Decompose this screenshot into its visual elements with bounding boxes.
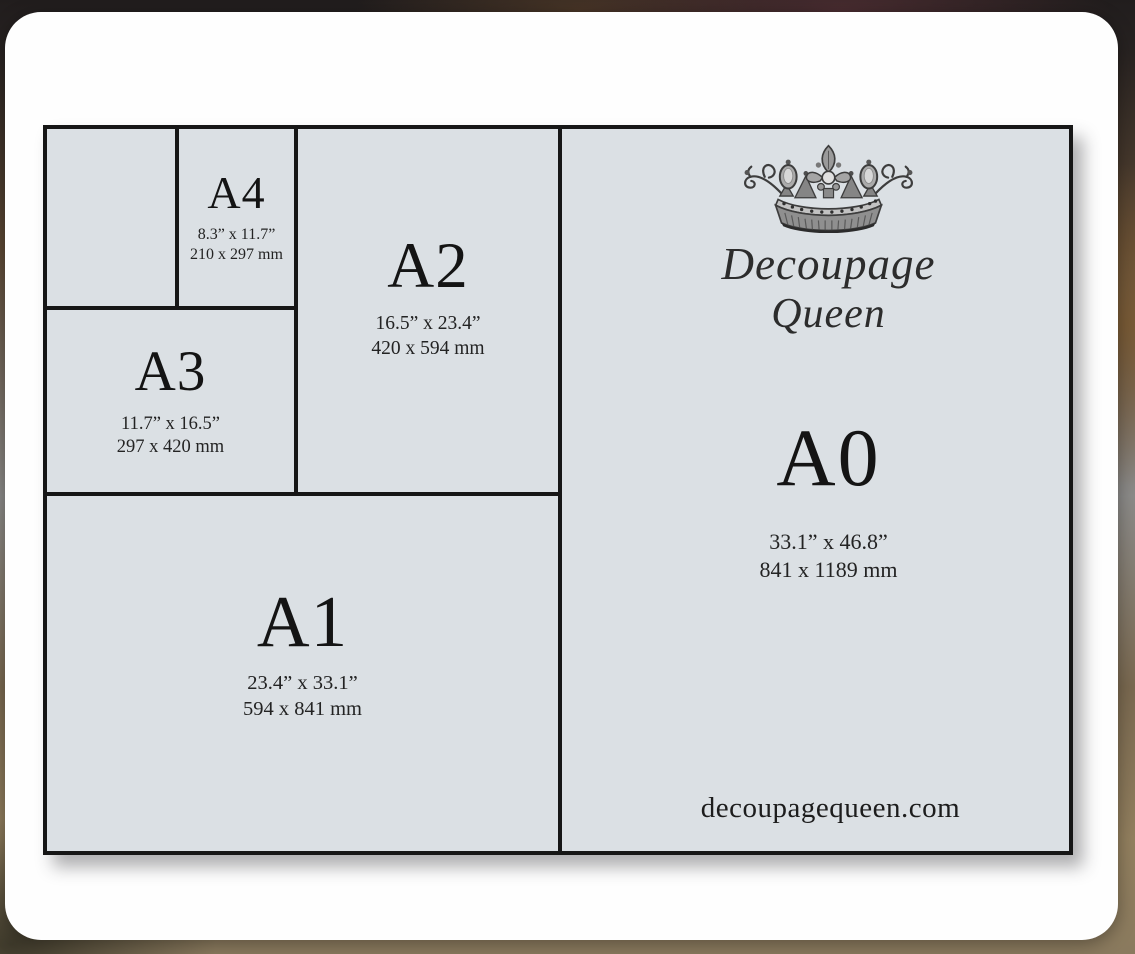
cell-a1: A1 23.4” x 33.1” 594 x 841 mm [47,496,558,851]
size-mm-a2: 420 x 594 mm [371,337,484,361]
empty-cell [47,129,175,306]
website-link[interactable]: decoupagequeen.com [577,792,1084,825]
brand-name-line1: Decoupage [575,242,1082,287]
size-mm-a3: 297 x 420 mm [117,436,224,459]
size-inches-a3: 11.7” x 16.5” [117,413,224,436]
card: A4 8.3” x 11.7” 210 x 297 mm A3 11.7” x … [5,12,1118,940]
size-mm-a4: 210 x 297 mm [190,245,283,265]
size-mm-a1: 594 x 841 mm [243,697,362,722]
cell-a2: A2 16.5” x 23.4” 420 x 594 mm [298,129,558,492]
size-dims-a3: 11.7” x 16.5” 297 x 420 mm [117,413,224,459]
size-code-a4: A4 [207,170,265,216]
brand-name-line2: Queen [575,293,1082,335]
size-dims-a0: 33.1” x 46.8” 841 x 1189 mm [575,528,1082,583]
cell-a4: A4 8.3” x 11.7” 210 x 297 mm [179,129,294,306]
size-inches-a1: 23.4” x 33.1” [243,671,362,696]
cell-a0: Decoupage Queen A0 33.1” x 46.8” 841 x 1… [562,129,1069,851]
size-code-a0: A0 [575,417,1082,499]
paper-size-chart: A4 8.3” x 11.7” 210 x 297 mm A3 11.7” x … [43,125,1073,855]
background-photo: A4 8.3” x 11.7” 210 x 297 mm A3 11.7” x … [0,0,1135,954]
size-dims-a2: 16.5” x 23.4” 420 x 594 mm [371,312,484,360]
size-code-a1: A1 [257,585,348,658]
size-code-a2: A2 [387,234,468,299]
cell-a3: A3 11.7” x 16.5” 297 x 420 mm [47,310,294,492]
size-dims-a4: 8.3” x 11.7” 210 x 297 mm [190,225,283,265]
brand-logo-block: Decoupage Queen [575,139,1082,335]
size-inches-a2: 16.5” x 23.4” [371,312,484,336]
size-inches-a4: 8.3” x 11.7” [190,225,283,245]
size-mm-a0: 841 x 1189 mm [575,556,1082,584]
size-code-a3: A3 [135,343,207,400]
crown-icon [736,139,921,233]
size-dims-a1: 23.4” x 33.1” 594 x 841 mm [243,671,362,722]
size-inches-a0: 33.1” x 46.8” [575,528,1082,556]
